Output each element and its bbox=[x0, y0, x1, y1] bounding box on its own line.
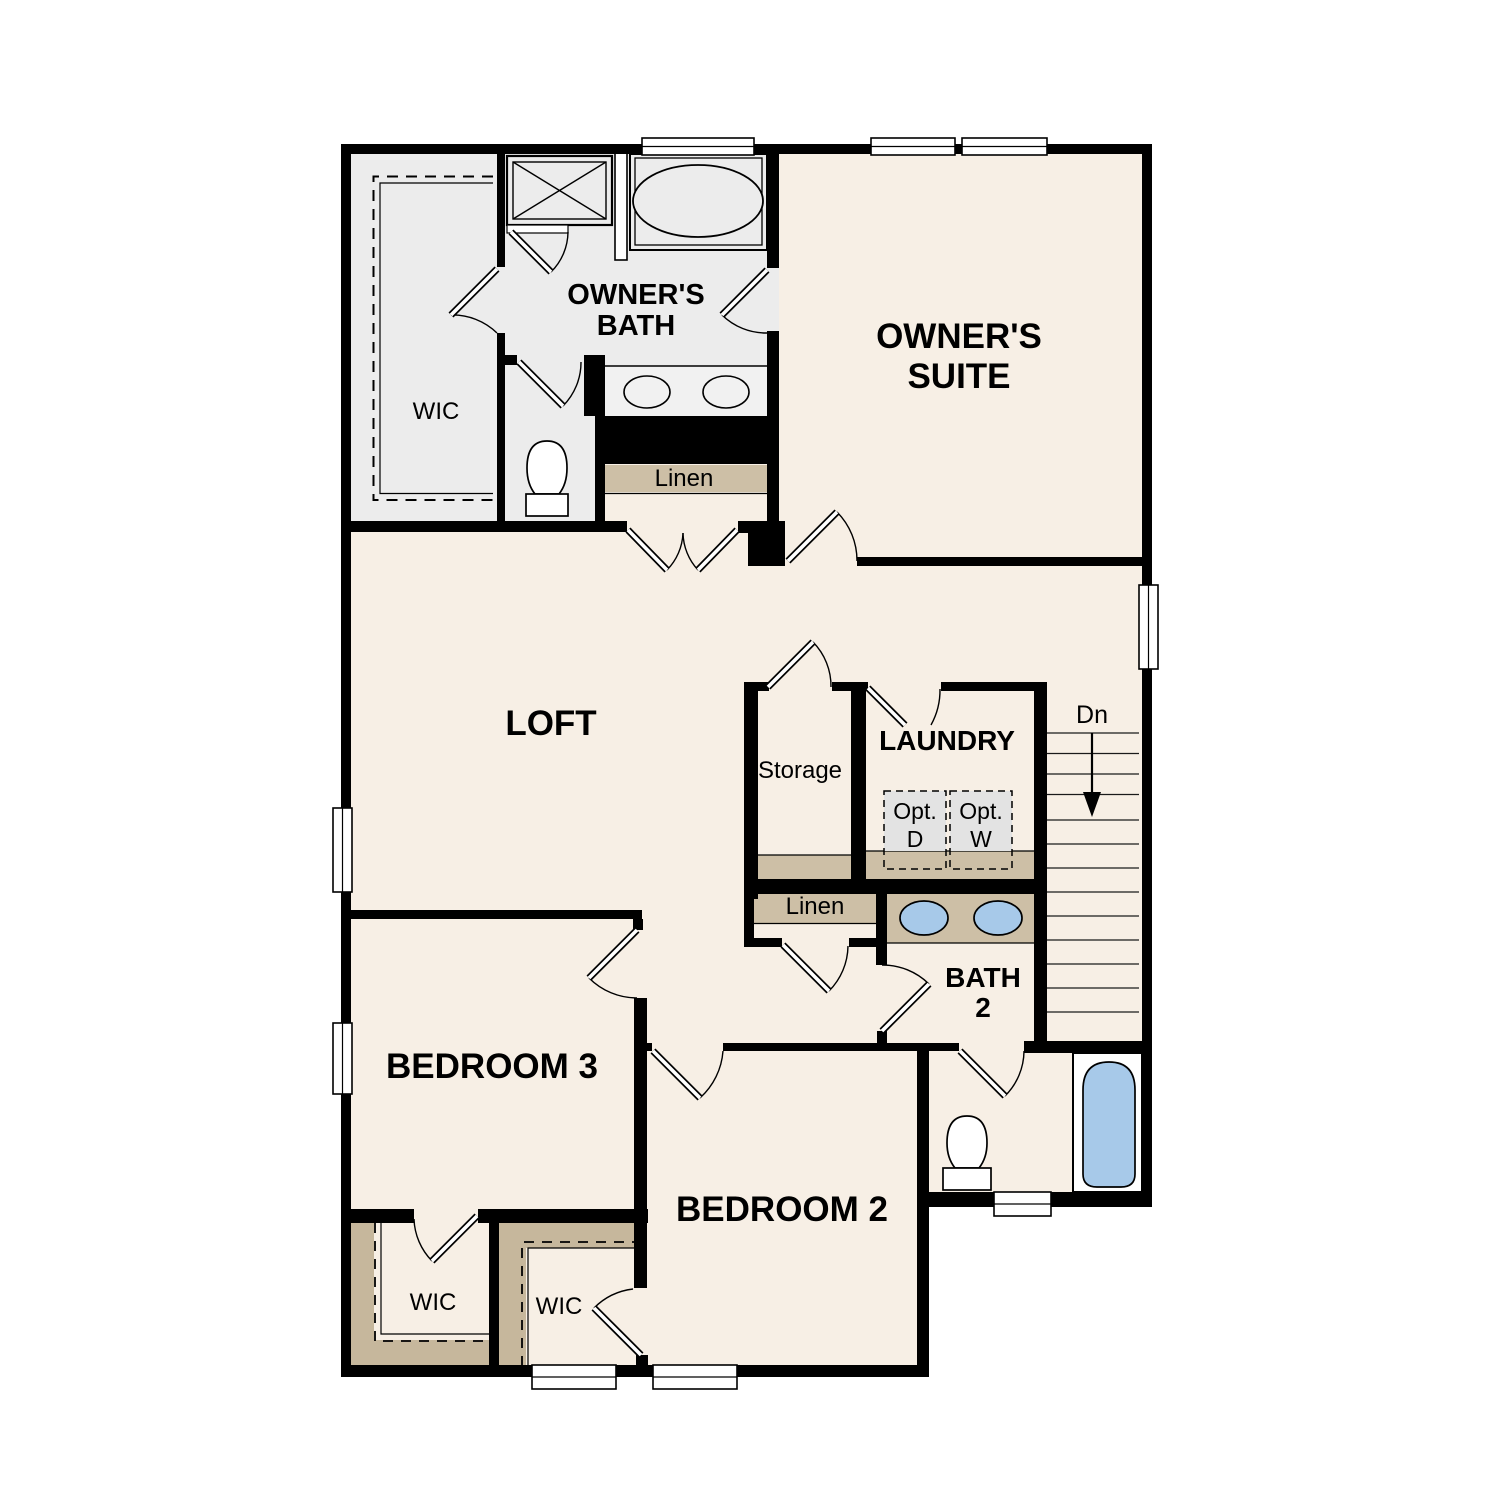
svg-text:OWNER'S: OWNER'S bbox=[567, 279, 704, 311]
svg-text:LAUNDRY: LAUNDRY bbox=[879, 725, 1015, 756]
svg-text:BATH: BATH bbox=[597, 310, 675, 342]
svg-text:WIC: WIC bbox=[413, 398, 460, 425]
svg-text:BEDROOM 3: BEDROOM 3 bbox=[386, 1047, 598, 1086]
svg-text:WIC: WIC bbox=[410, 1289, 457, 1316]
svg-text:OWNER'S: OWNER'S bbox=[876, 317, 1042, 356]
svg-text:Linen: Linen bbox=[786, 893, 845, 920]
svg-text:BEDROOM 2: BEDROOM 2 bbox=[676, 1190, 888, 1229]
svg-text:BATH: BATH bbox=[945, 962, 1021, 993]
svg-text:Linen: Linen bbox=[655, 465, 714, 492]
svg-text:2: 2 bbox=[975, 992, 991, 1023]
svg-text:WIC: WIC bbox=[536, 1293, 583, 1320]
svg-text:LOFT: LOFT bbox=[505, 704, 596, 743]
svg-text:SUITE: SUITE bbox=[907, 357, 1010, 396]
svg-text:Opt.: Opt. bbox=[959, 798, 1002, 824]
svg-text:Storage: Storage bbox=[758, 757, 842, 784]
svg-text:W: W bbox=[970, 826, 992, 852]
svg-text:Dn: Dn bbox=[1076, 701, 1108, 729]
svg-text:Opt.: Opt. bbox=[893, 798, 936, 824]
svg-text:D: D bbox=[907, 826, 924, 852]
